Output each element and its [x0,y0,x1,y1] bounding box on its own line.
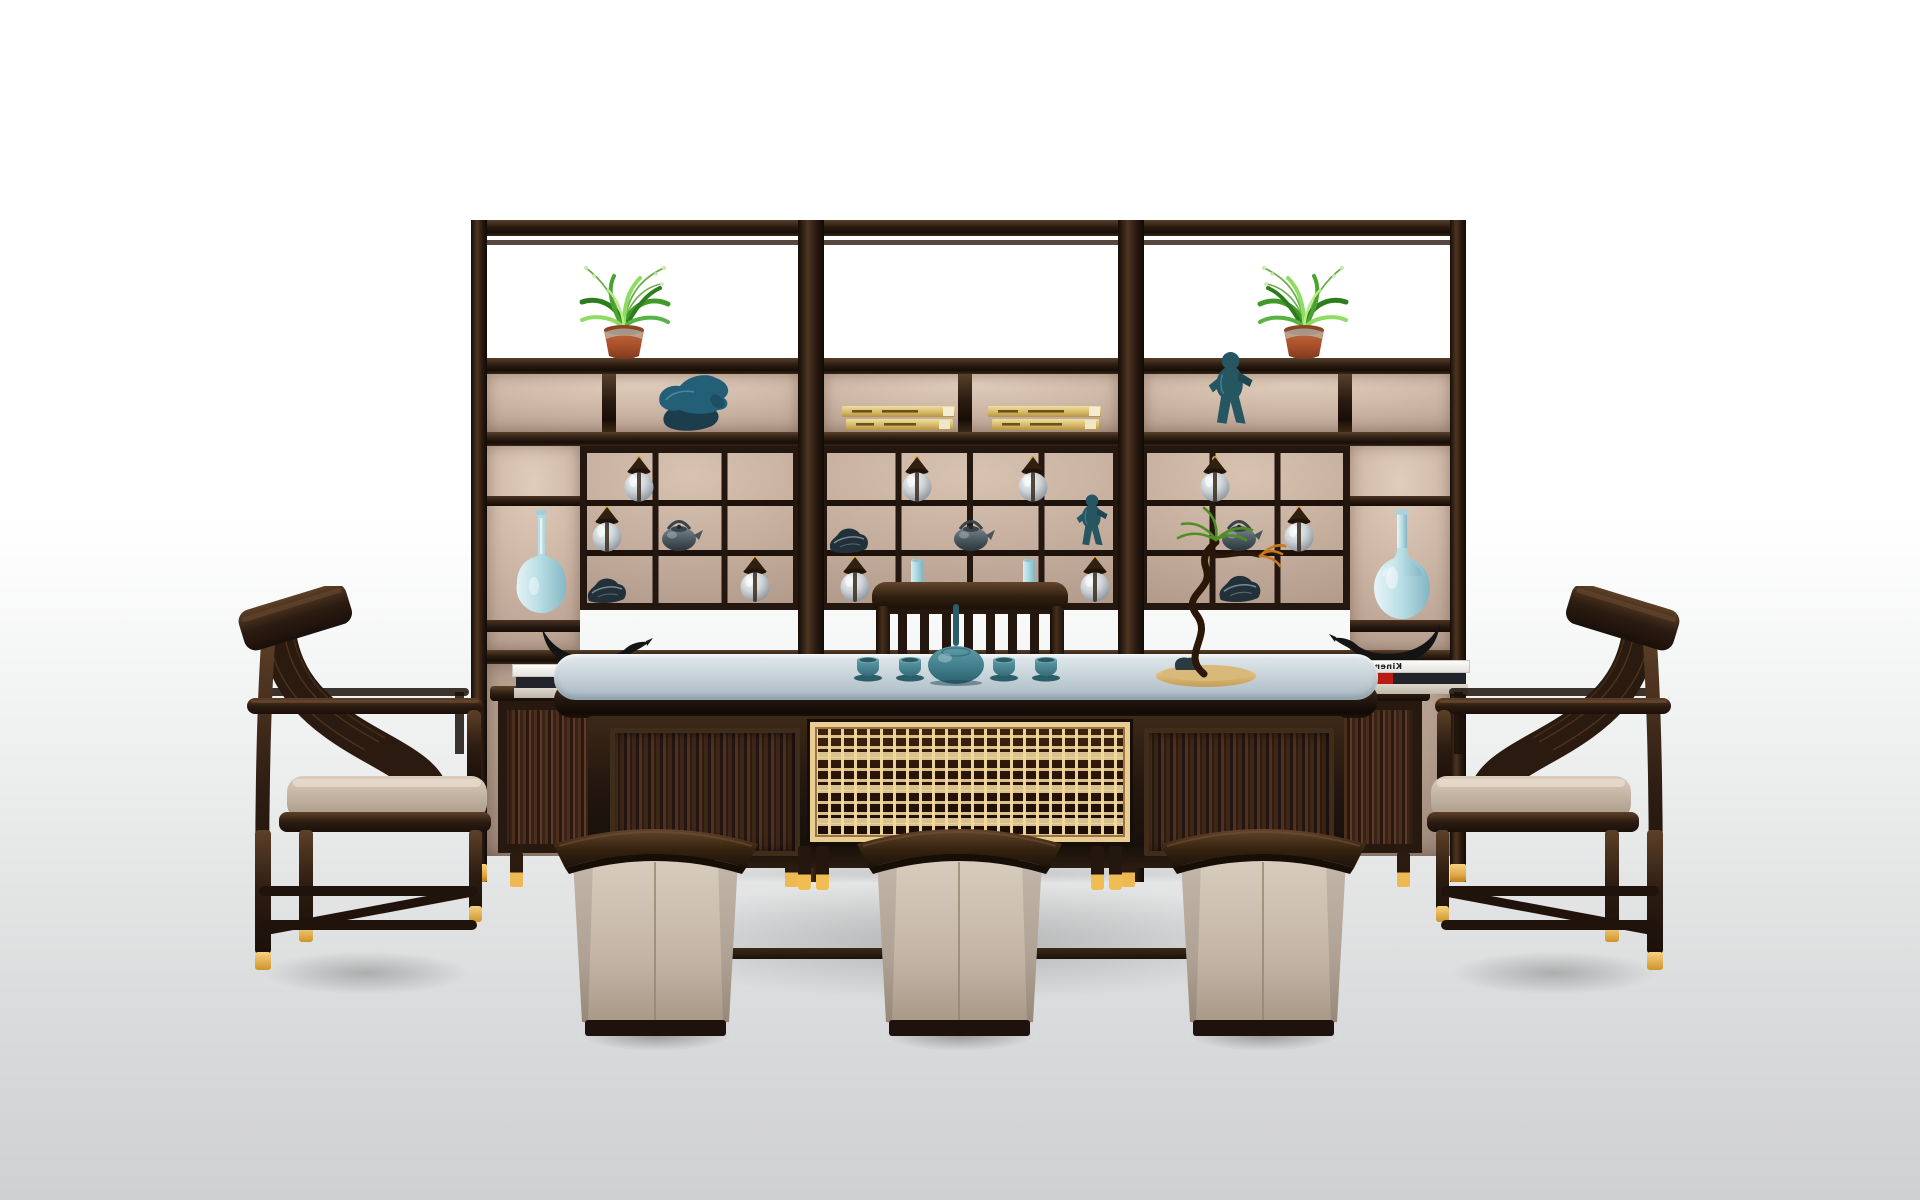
bull-figurine [650,366,734,432]
lantern-jar-graphic [836,555,874,603]
gold-foot-cap [1436,906,1449,922]
potted-plant-graphic [544,246,704,362]
cabinet-top-beam [471,220,1466,236]
chair-arm-post [467,710,481,784]
table-leg [1091,846,1104,890]
teacup [852,656,884,682]
cabinet-shelf-beam [471,432,1466,446]
teapot [656,517,704,553]
side-cabinet-leg [510,853,523,887]
lantern-jar [588,505,626,553]
stool-base [585,1020,726,1036]
rock-ornament [584,575,630,603]
teacup [1030,656,1062,682]
armchair-graphic [1425,586,1685,986]
rock-ornament-graphic [584,575,630,603]
lantern-jar [1014,455,1052,503]
cabinet-back-panel [487,374,798,432]
cabinet-back-panel [1144,374,1450,432]
lantern-jar [736,555,774,603]
teacup-graphic [1030,656,1062,682]
cabinet-shelf [1350,496,1450,506]
stool-graphic [549,810,762,1036]
gourd-vase-round [1372,508,1432,622]
potted-plant [1224,246,1384,362]
lantern-jar-graphic [736,555,774,603]
potted-plant [544,246,704,362]
stool-base [1193,1020,1334,1036]
teacup-graphic [852,656,884,682]
teacup [894,656,926,682]
table-leg [1109,846,1122,890]
tea-room-furniture-render: Kinemathek Kinemathek [0,0,1920,1200]
lantern-jar [898,455,936,503]
gold-books [986,404,1104,432]
rock-ornament [826,525,872,553]
teapot-graphic [948,517,996,553]
teapot-graphic [656,517,704,553]
bonsai-graphic [1120,500,1290,690]
armchair [1425,586,1685,986]
chair-seat-frame [279,812,491,832]
table-leg [798,846,811,890]
gourd-vase-graphic [514,510,568,622]
tea-teapot [924,604,988,686]
gold-books [840,404,958,432]
gourd-vase-graphic [1372,508,1432,622]
teacup-graphic [988,656,1020,682]
child-figurine-graphic [1202,350,1262,432]
child-figurine [1202,350,1262,432]
tea-teapot-graphic [924,604,988,686]
stool [1157,810,1370,1036]
gold-foot-cap [255,952,271,970]
teacup-graphic [894,656,926,682]
table-leg [816,846,829,890]
teacup [988,656,1020,682]
lantern-jar-graphic [620,455,658,503]
cabinet-divider [958,374,972,432]
child-figurine [1072,493,1114,551]
rock-ornament-graphic [826,525,872,553]
gold-foot-cap [1647,952,1663,970]
lantern-jar [836,555,874,603]
teapot [948,517,996,553]
lantern-jar-graphic [1196,455,1234,503]
stool-graphic [1157,810,1370,1036]
lantern-jar-graphic [588,505,626,553]
lantern-jar-graphic [1076,555,1114,603]
cabinet-divider [1338,374,1352,432]
bonsai [1120,500,1290,690]
bonsai-orange-frond [1260,545,1285,566]
lantern-jar [1196,455,1234,503]
lantern-jar-graphic [1014,455,1052,503]
chair-post [1050,606,1064,660]
gold-foot-cap [469,906,482,922]
armchair [233,586,493,986]
lantern-jar [1076,555,1114,603]
side-cabinet-leg [1397,853,1410,887]
stool [549,810,762,1036]
gourd-vase-tall [514,510,568,622]
bonsai-fronds [1178,508,1252,540]
gold-books-graphic [840,404,958,432]
chair-seat-frame [1427,812,1639,832]
potted-plant-graphic [1224,246,1384,362]
stool-graphic [853,810,1066,1036]
stool [853,810,1066,1036]
chair-arm-post [1437,710,1451,784]
armchair-graphic [233,586,493,986]
gold-books-graphic [986,404,1104,432]
stool-base [889,1020,1030,1036]
lantern-jar-graphic [898,455,936,503]
cabinet-beam [481,240,1456,245]
child-figurine-graphic [1072,493,1114,551]
cabinet-divider [602,374,616,432]
bull-figurine-graphic [650,366,734,432]
cabinet-shelf [487,496,580,506]
lantern-jar [620,455,658,503]
chair-post [876,606,890,660]
